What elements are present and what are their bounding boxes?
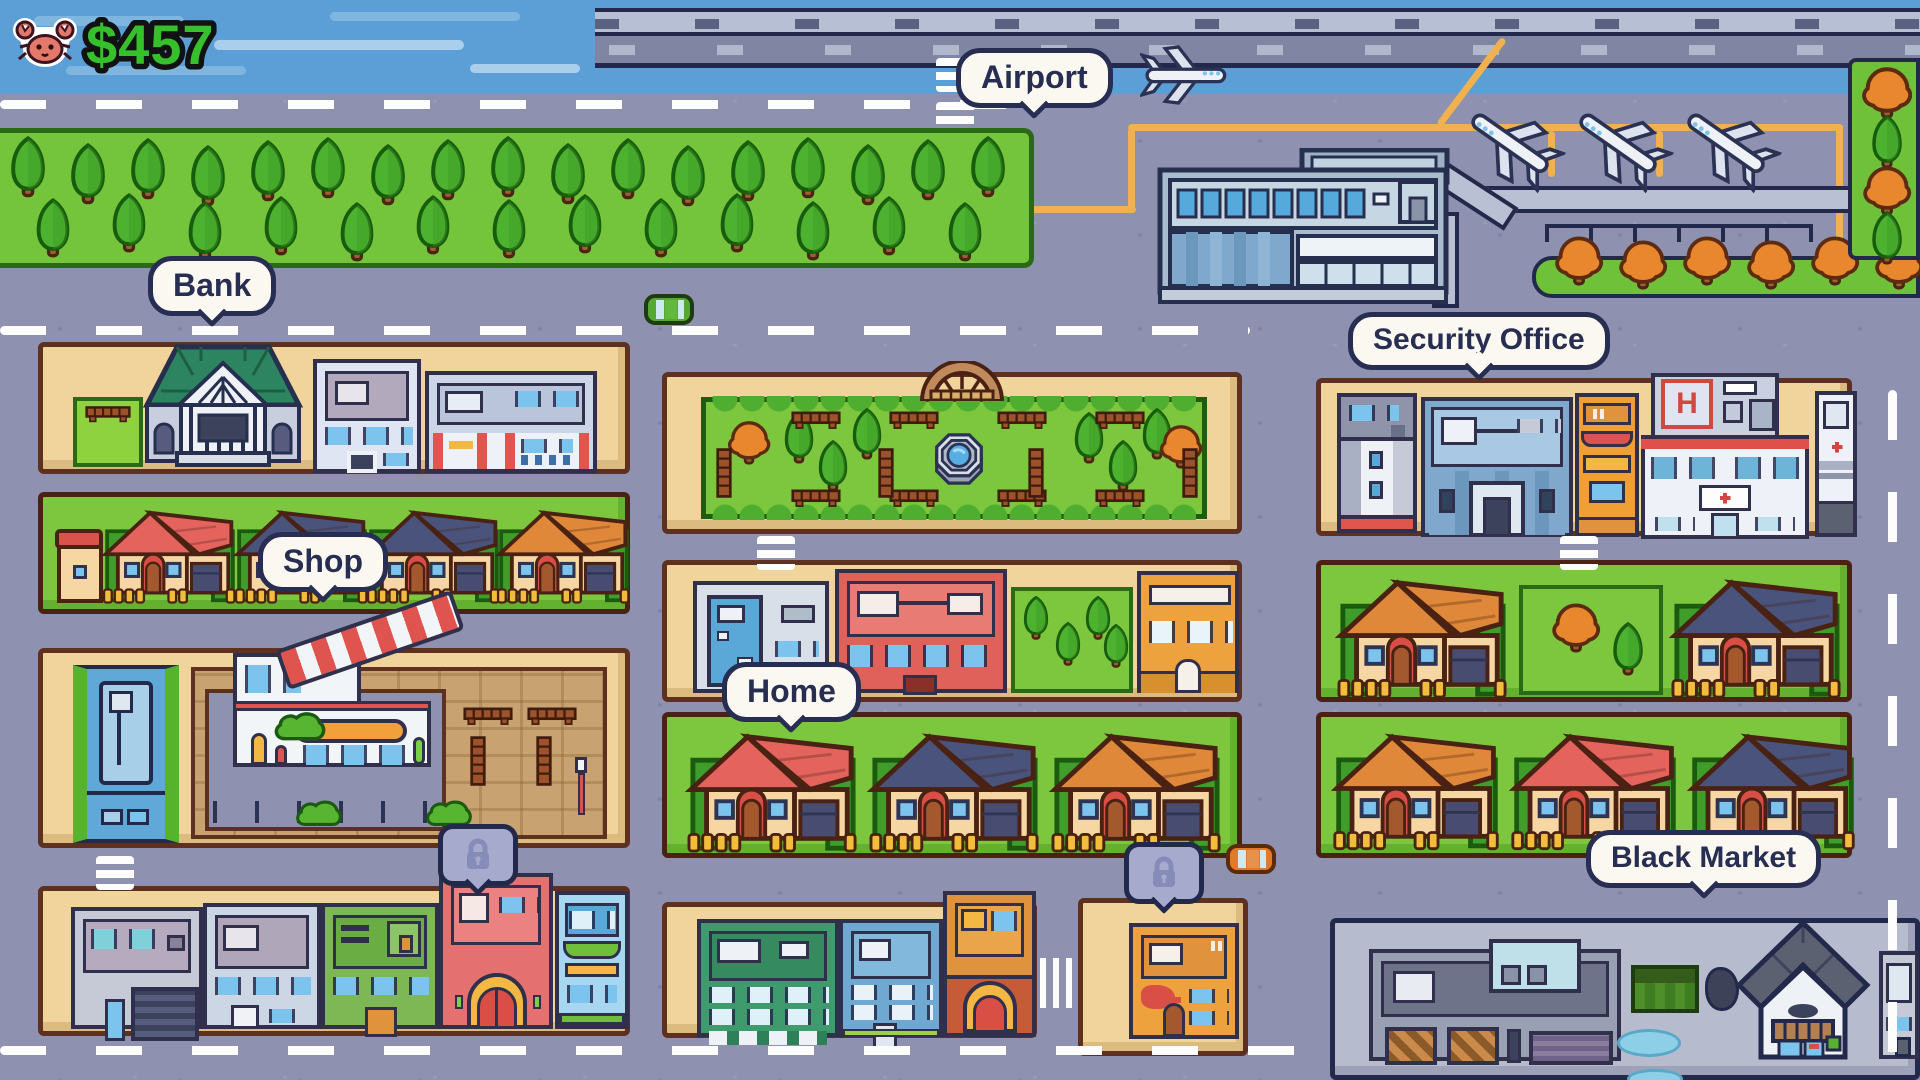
crosswalk-marks [757, 536, 795, 570]
tree-icon [1862, 64, 1912, 120]
airport-runway [595, 8, 1920, 36]
bench-icon [1181, 447, 1199, 499]
tree-icon [940, 201, 990, 263]
shop-building [233, 641, 433, 769]
map-label-shop[interactable]: Shop [258, 532, 388, 592]
green-building [697, 919, 839, 1037]
bench-icon [527, 707, 577, 725]
map-label-home[interactable]: Home [722, 662, 861, 722]
blue-building [839, 919, 943, 1037]
taxiway-line [1128, 128, 1135, 213]
tree-icon [1862, 164, 1912, 216]
road-centerline [1888, 390, 1897, 1080]
bench-icon [1027, 447, 1045, 499]
tree-icon [712, 192, 762, 254]
security-office-building [1421, 397, 1573, 537]
right-tree-strip [1848, 58, 1920, 260]
house [495, 505, 633, 605]
crosswalk [1040, 958, 1080, 1008]
orange-shop [1575, 393, 1639, 537]
map-label-bank[interactable]: Bank [148, 256, 276, 316]
tree-icon [1864, 114, 1910, 170]
dumpster [1631, 965, 1699, 1013]
road-centerline [0, 100, 1040, 109]
derelict-warehouse [1369, 949, 1621, 1061]
crab-icon [12, 14, 78, 72]
tree-icon [1607, 621, 1649, 677]
bench-icon [469, 735, 487, 787]
tree-icon [1864, 210, 1910, 266]
commercial-block [662, 902, 1037, 1038]
tree-icon [1614, 238, 1672, 290]
bench-icon [889, 489, 939, 507]
bench-icon [877, 447, 895, 499]
red-store [835, 569, 1007, 693]
house [101, 505, 239, 605]
sports-court [73, 665, 179, 843]
clinic-annex [1815, 391, 1857, 537]
tree-icon [1547, 601, 1605, 653]
gate-barrier-pole [578, 773, 585, 815]
map-label-black-market[interactable]: Black Market [1586, 830, 1821, 888]
money-counter: $457 [80, 6, 340, 82]
house [1049, 727, 1225, 854]
tree-strip-row2 [0, 128, 1034, 268]
park-block [662, 372, 1242, 534]
puddle [1617, 1029, 1681, 1057]
residential-block [1316, 560, 1852, 702]
black-market-shack [1733, 919, 1873, 1061]
hospital: H [1641, 373, 1813, 541]
town-map: H [0, 0, 1920, 1080]
bank-block [38, 342, 630, 474]
bank-building [141, 341, 305, 473]
lock-icon [463, 838, 493, 872]
tree-icon [1019, 595, 1053, 641]
puddle [1627, 1069, 1683, 1080]
red-cross-icon [1717, 490, 1733, 506]
tree-icon [256, 195, 306, 257]
bush-icon [425, 799, 473, 827]
tree-icon [1099, 623, 1133, 669]
house [1669, 573, 1845, 700]
bench-icon [1095, 411, 1145, 429]
tree-icon [1051, 621, 1085, 667]
locked-lot [1078, 898, 1248, 1056]
bench-icon [85, 405, 131, 423]
tree-icon [1550, 234, 1608, 286]
tree-icon [484, 198, 534, 260]
autumn-tree-strip [1532, 256, 1920, 298]
tree-icon [332, 201, 382, 263]
orange-shop [1129, 923, 1239, 1039]
green-building [321, 903, 439, 1029]
commercial-block [38, 886, 630, 1036]
orange-car [1226, 842, 1276, 876]
lock-marker[interactable] [1124, 842, 1204, 904]
park-gate [917, 361, 1007, 401]
kiosk [57, 541, 103, 603]
bench-icon [535, 735, 553, 787]
road-centerline [0, 1046, 1334, 1055]
airplane-icon [1140, 42, 1240, 108]
heliport: H [1661, 379, 1713, 429]
corner-tower [1337, 393, 1417, 533]
orange-tower [943, 891, 1036, 1037]
bench-icon [463, 707, 513, 725]
gate-barrier [575, 757, 587, 773]
shop-building [425, 371, 597, 473]
tree-icon [1742, 238, 1800, 290]
office-building [203, 903, 321, 1029]
bush-icon [295, 799, 343, 827]
house [1335, 573, 1511, 700]
tree-icon [864, 195, 914, 257]
bench-icon [715, 447, 733, 499]
tree-icon [636, 197, 686, 259]
red-cross-icon [1829, 439, 1845, 455]
black-market-block [1330, 918, 1920, 1080]
shop-block [38, 648, 630, 848]
green-car [644, 292, 694, 328]
blue-shop [555, 891, 629, 1029]
tree-icon [560, 193, 610, 255]
road-centerline [0, 326, 1250, 335]
orange-building [1137, 571, 1239, 693]
tree-icon [788, 200, 838, 262]
bush-icon [273, 711, 327, 741]
tree-icon [408, 194, 458, 256]
bench-icon [791, 411, 841, 429]
airport-terminal [1152, 148, 1452, 308]
bench-icon [791, 489, 841, 507]
tree-icon [180, 200, 230, 262]
warehouse [71, 907, 203, 1029]
lock-icon [1149, 856, 1179, 890]
fountain [933, 431, 985, 487]
tree-icon [28, 197, 78, 259]
crosswalk-marks [96, 856, 134, 890]
airport-taxistrip [595, 36, 1920, 68]
taxiway-line [1836, 124, 1843, 244]
red-building [439, 873, 553, 1029]
house [1331, 727, 1503, 852]
bench-icon [1095, 489, 1145, 507]
crosswalk-marks [1560, 536, 1598, 570]
house [685, 727, 861, 854]
office-building [313, 359, 421, 473]
house [867, 727, 1043, 854]
gray-building [1879, 951, 1919, 1059]
tree-icon [104, 192, 154, 254]
security-block: H [1316, 378, 1852, 536]
money-balance: $457 [86, 13, 215, 76]
residential-block [662, 712, 1242, 858]
map-label-airport[interactable]: Airport [956, 48, 1113, 108]
lock-marker[interactable] [438, 824, 518, 886]
tree-icon [1678, 234, 1736, 286]
map-label-security-office[interactable]: Security Office [1348, 312, 1610, 370]
bench-icon [997, 411, 1047, 429]
bench-icon [889, 411, 939, 429]
